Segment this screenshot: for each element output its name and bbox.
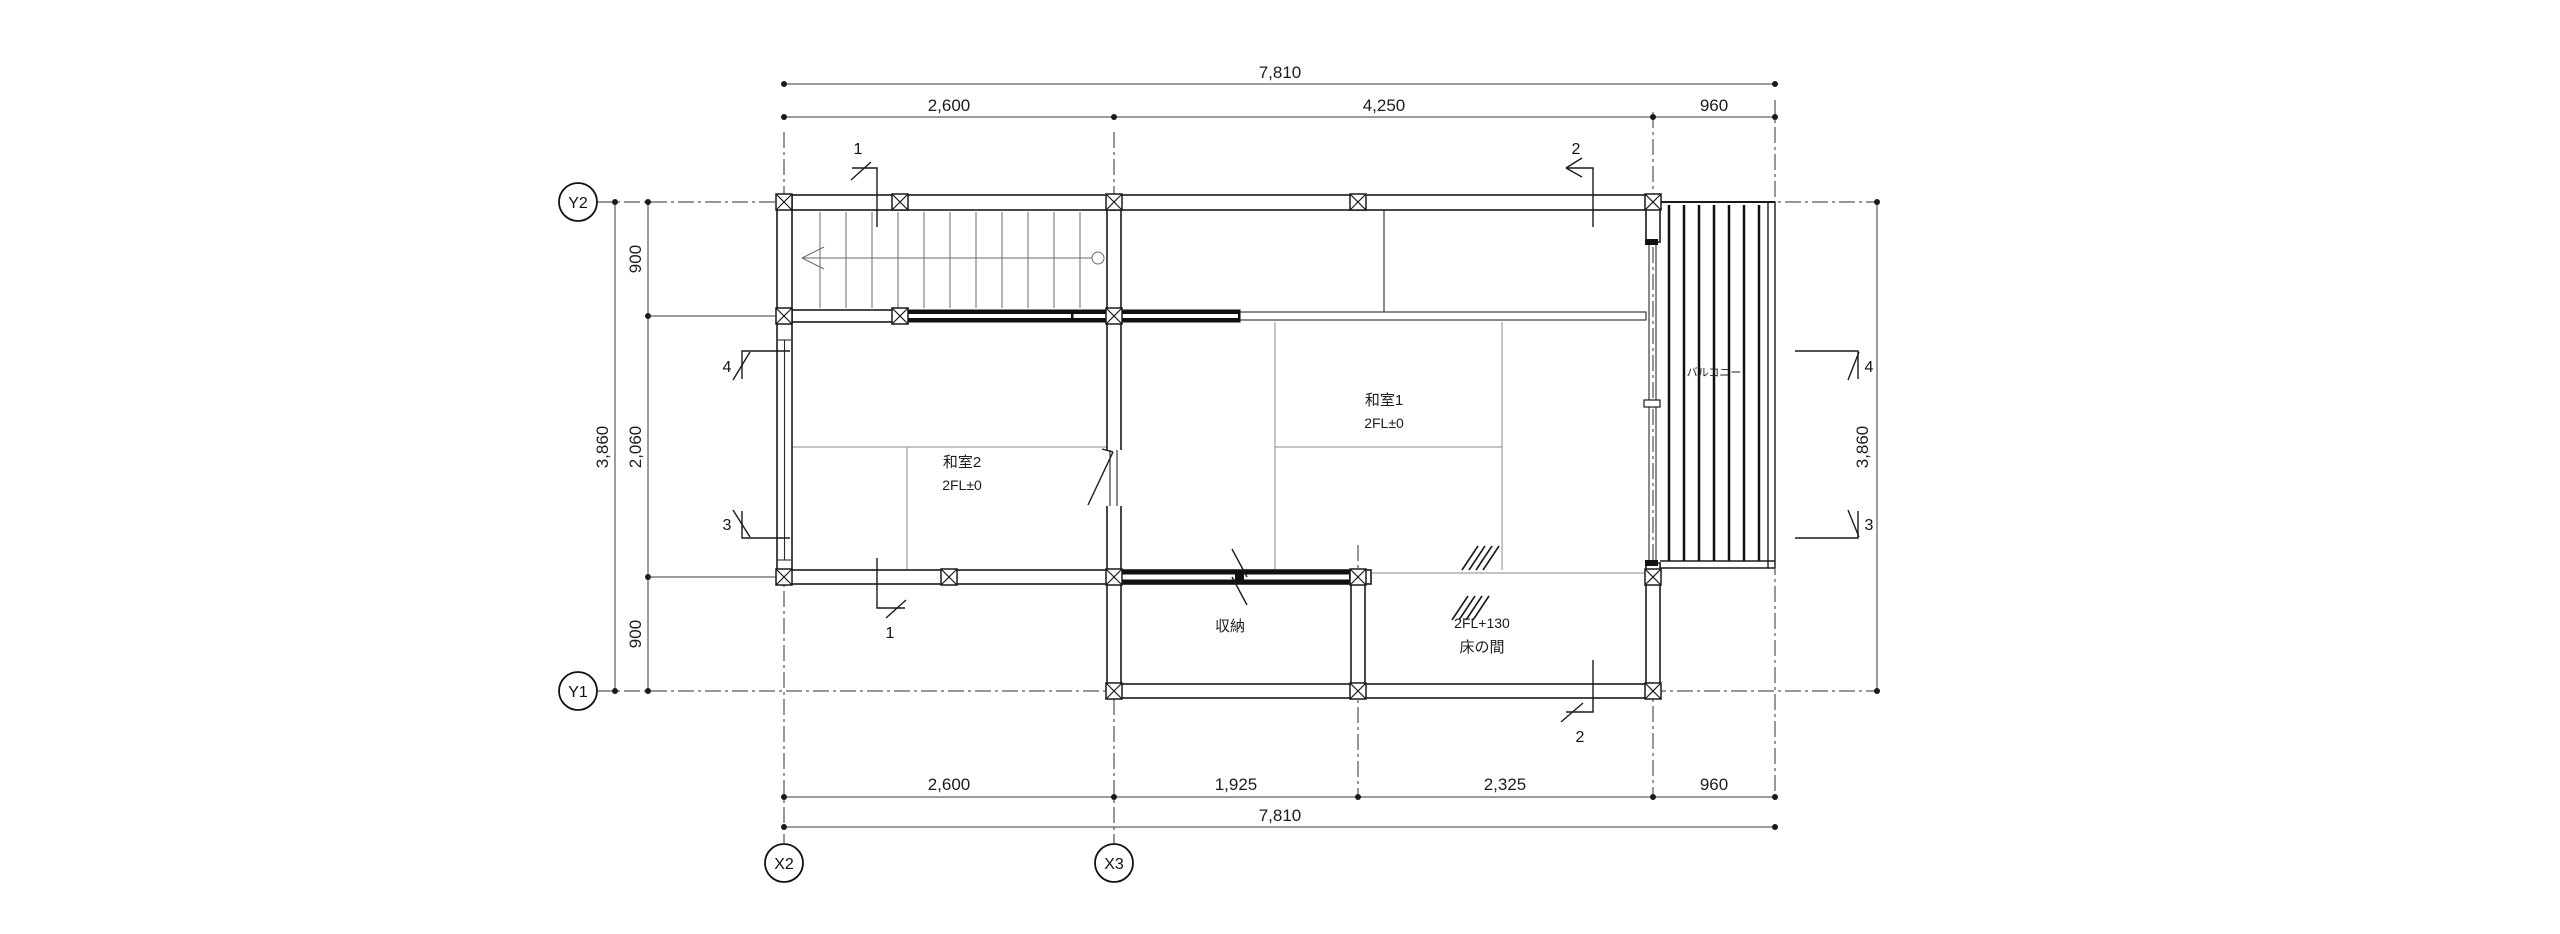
- stair-treads: [820, 212, 1080, 308]
- grid-bubble-x3-label: X3: [1104, 856, 1124, 873]
- section-label-2: 2: [1572, 141, 1581, 158]
- dim-left-overall: 3,860: [593, 426, 612, 469]
- section-label-4: 4: [1865, 359, 1874, 376]
- column-marker: [1350, 194, 1366, 210]
- section-marker-4-right: 4: [1795, 351, 1874, 380]
- column-marker: [892, 194, 908, 210]
- washitsu2-door: [1088, 449, 1122, 506]
- dim-left-seg-top: 900: [626, 245, 645, 273]
- floorplan-canvas: 7,810 2,600 4,250 960 2,600 1,925 2,325 …: [0, 0, 2560, 934]
- dim-left-seg-mid: 2,060: [626, 426, 645, 469]
- dim-top-seg3: 960: [1700, 96, 1728, 115]
- stairs: [802, 212, 1104, 308]
- column-marker: [1106, 569, 1122, 585]
- room-level-washitsu1: 2FL±0: [1364, 415, 1404, 431]
- wall-strip-boundary: [1240, 312, 1646, 320]
- column-marker: [1350, 683, 1366, 699]
- section-label-4: 4: [723, 359, 732, 376]
- room-label-washitsu1: 和室1: [1365, 392, 1403, 409]
- wall-north: [777, 195, 1660, 210]
- section-label-3: 3: [1865, 517, 1874, 534]
- tokonoma-hatch: [1452, 546, 1499, 620]
- floorplan-drawing: 7,810 2,600 4,250 960 2,600 1,925 2,325 …: [0, 0, 2560, 934]
- column-marker: [892, 308, 908, 324]
- wall-x3-upper: [1107, 210, 1121, 310]
- section-label-1: 1: [854, 141, 863, 158]
- dimension-left: 3,860 900 2,060 900: [593, 199, 777, 694]
- column-marker: [1645, 569, 1661, 585]
- dimension-right: 3,860: [1853, 199, 1880, 694]
- dim-bottom-overall: 7,810: [1259, 806, 1302, 825]
- wing-wall-south: [1107, 684, 1660, 698]
- section-markers: 1 1 2 2 4 3 4: [723, 141, 1874, 746]
- grid-bubble-x2-label: X2: [774, 856, 794, 873]
- stair-closet-sliding-doors: [904, 310, 1241, 323]
- room-level-washitsu2: 2FL±0: [942, 477, 982, 493]
- dim-left-seg-bot: 900: [626, 620, 645, 648]
- section-marker-2-top: 2: [1566, 141, 1593, 227]
- balcony-door: [1644, 239, 1660, 566]
- grid-bubble-y1-label: Y1: [568, 684, 588, 701]
- column-marker: [1645, 194, 1661, 210]
- column-marker: [941, 569, 957, 585]
- room-label-tokonoma: 床の間: [1459, 639, 1504, 656]
- dim-top-seg2: 4,250: [1363, 96, 1406, 115]
- balcony-deck-slats: [1669, 205, 1759, 561]
- wing-wall-divider: [1351, 584, 1365, 684]
- wall-x3-lower: [1107, 322, 1121, 570]
- tatami-lines: [792, 210, 1646, 573]
- dim-bottom-seg4: 960: [1700, 775, 1728, 794]
- column-marker: [1106, 194, 1122, 210]
- section-marker-2-bottom: 2: [1561, 660, 1593, 746]
- room-label-washitsu2: 和室2: [943, 454, 981, 471]
- column-marker: [1106, 683, 1122, 699]
- dim-top-seg1: 2,600: [928, 96, 971, 115]
- openings: [778, 239, 1660, 620]
- section-label-1: 1: [886, 625, 895, 642]
- column-marker: [776, 569, 792, 585]
- section-label-2: 2: [1576, 729, 1585, 746]
- column-marker: [1106, 308, 1122, 324]
- dim-top-overall: 7,810: [1259, 63, 1302, 82]
- stair-direction-arrow: [802, 247, 1104, 269]
- dim-bottom-seg2: 1,925: [1215, 775, 1258, 794]
- room-labels: 和室1 2FL±0 和室2 2FL±0 収納 2FL+130 床の間 バルコニー: [942, 366, 1741, 656]
- room-level-tokonoma: 2FL+130: [1454, 615, 1510, 631]
- dim-bottom-seg3: 2,325: [1484, 775, 1527, 794]
- section-marker-1-top: 1: [851, 141, 877, 227]
- column-marker: [1350, 569, 1366, 585]
- column-marker: [1645, 683, 1661, 699]
- wing-wall-west: [1107, 584, 1121, 698]
- wall-stair-south: [792, 310, 905, 322]
- column-marker: [776, 308, 792, 324]
- wing-wall-east: [1646, 584, 1660, 698]
- section-label-3: 3: [723, 517, 732, 534]
- balcony: [1660, 202, 1775, 568]
- grid-bubble-y2-label: Y2: [568, 195, 588, 212]
- dimension-bottom: 2,600 1,925 2,325 960 7,810: [781, 775, 1778, 830]
- column-marker: [776, 194, 792, 210]
- dim-bottom-seg1: 2,600: [928, 775, 971, 794]
- room-label-shuno: 収納: [1215, 618, 1245, 635]
- room-label-balcony: バルコニー: [1687, 366, 1742, 379]
- dimension-top: 7,810 2,600 4,250 960: [781, 63, 1778, 120]
- section-marker-3-right: 3: [1795, 510, 1874, 538]
- dim-right-overall: 3,860: [1853, 426, 1872, 469]
